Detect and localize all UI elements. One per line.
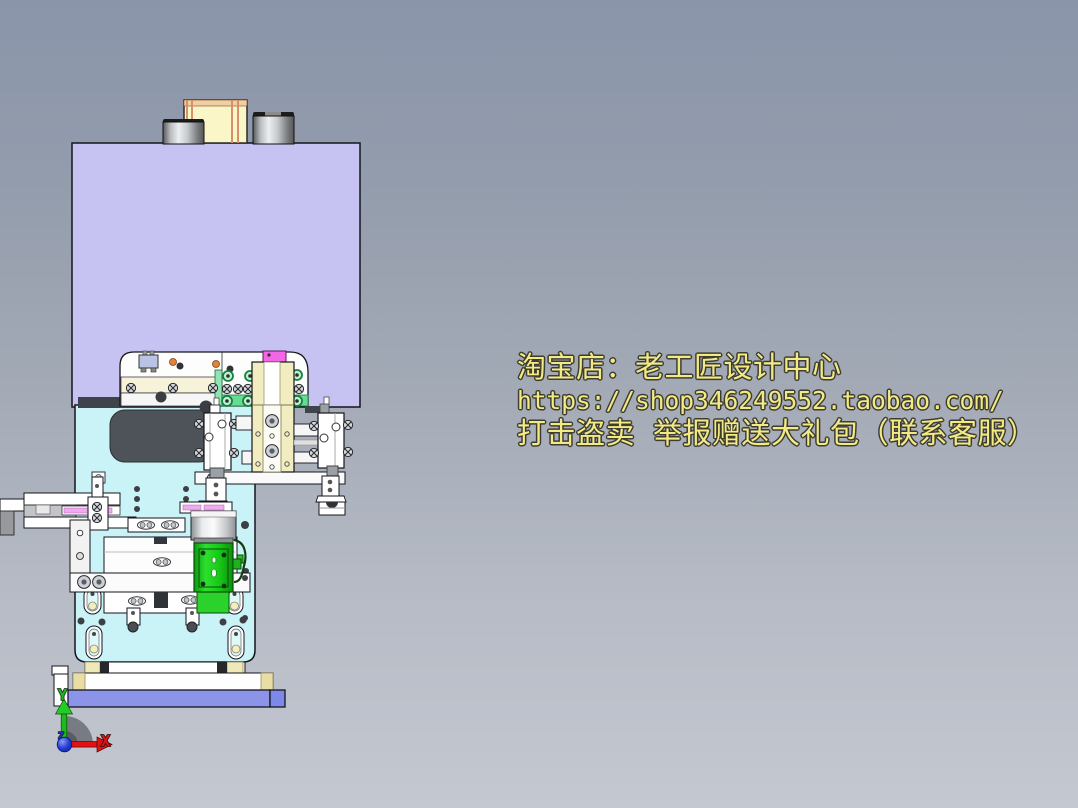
cylinder-left — [163, 119, 204, 144]
z-axis-origin-ball — [57, 737, 71, 751]
y-axis-label: Y — [58, 686, 67, 704]
central-slide-unit — [252, 362, 294, 472]
x-axis-label: X — [101, 732, 110, 750]
watermark-overlay: 淘宝店：老工匠设计中心 https://shop346249552.taobao… — [517, 351, 1036, 450]
watermark-notice: 打击盗卖 举报赠送大礼包（联系客服） — [517, 417, 1036, 450]
bottom-plate-blue — [68, 690, 270, 707]
cad-viewport[interactable]: Z Y X 淘宝店：老工匠设计中心 https://shop346249552.… — [0, 0, 1078, 808]
cylinder-right — [253, 112, 294, 144]
watermark-shop-url: https://shop346249552.taobao.com/ — [517, 384, 1036, 417]
top-actuator-cylinders — [163, 100, 294, 144]
base-plates — [52, 662, 285, 707]
mini-cylinder-right — [309, 397, 352, 515]
watermark-shop-name: 淘宝店：老工匠设计中心 — [517, 351, 1036, 384]
